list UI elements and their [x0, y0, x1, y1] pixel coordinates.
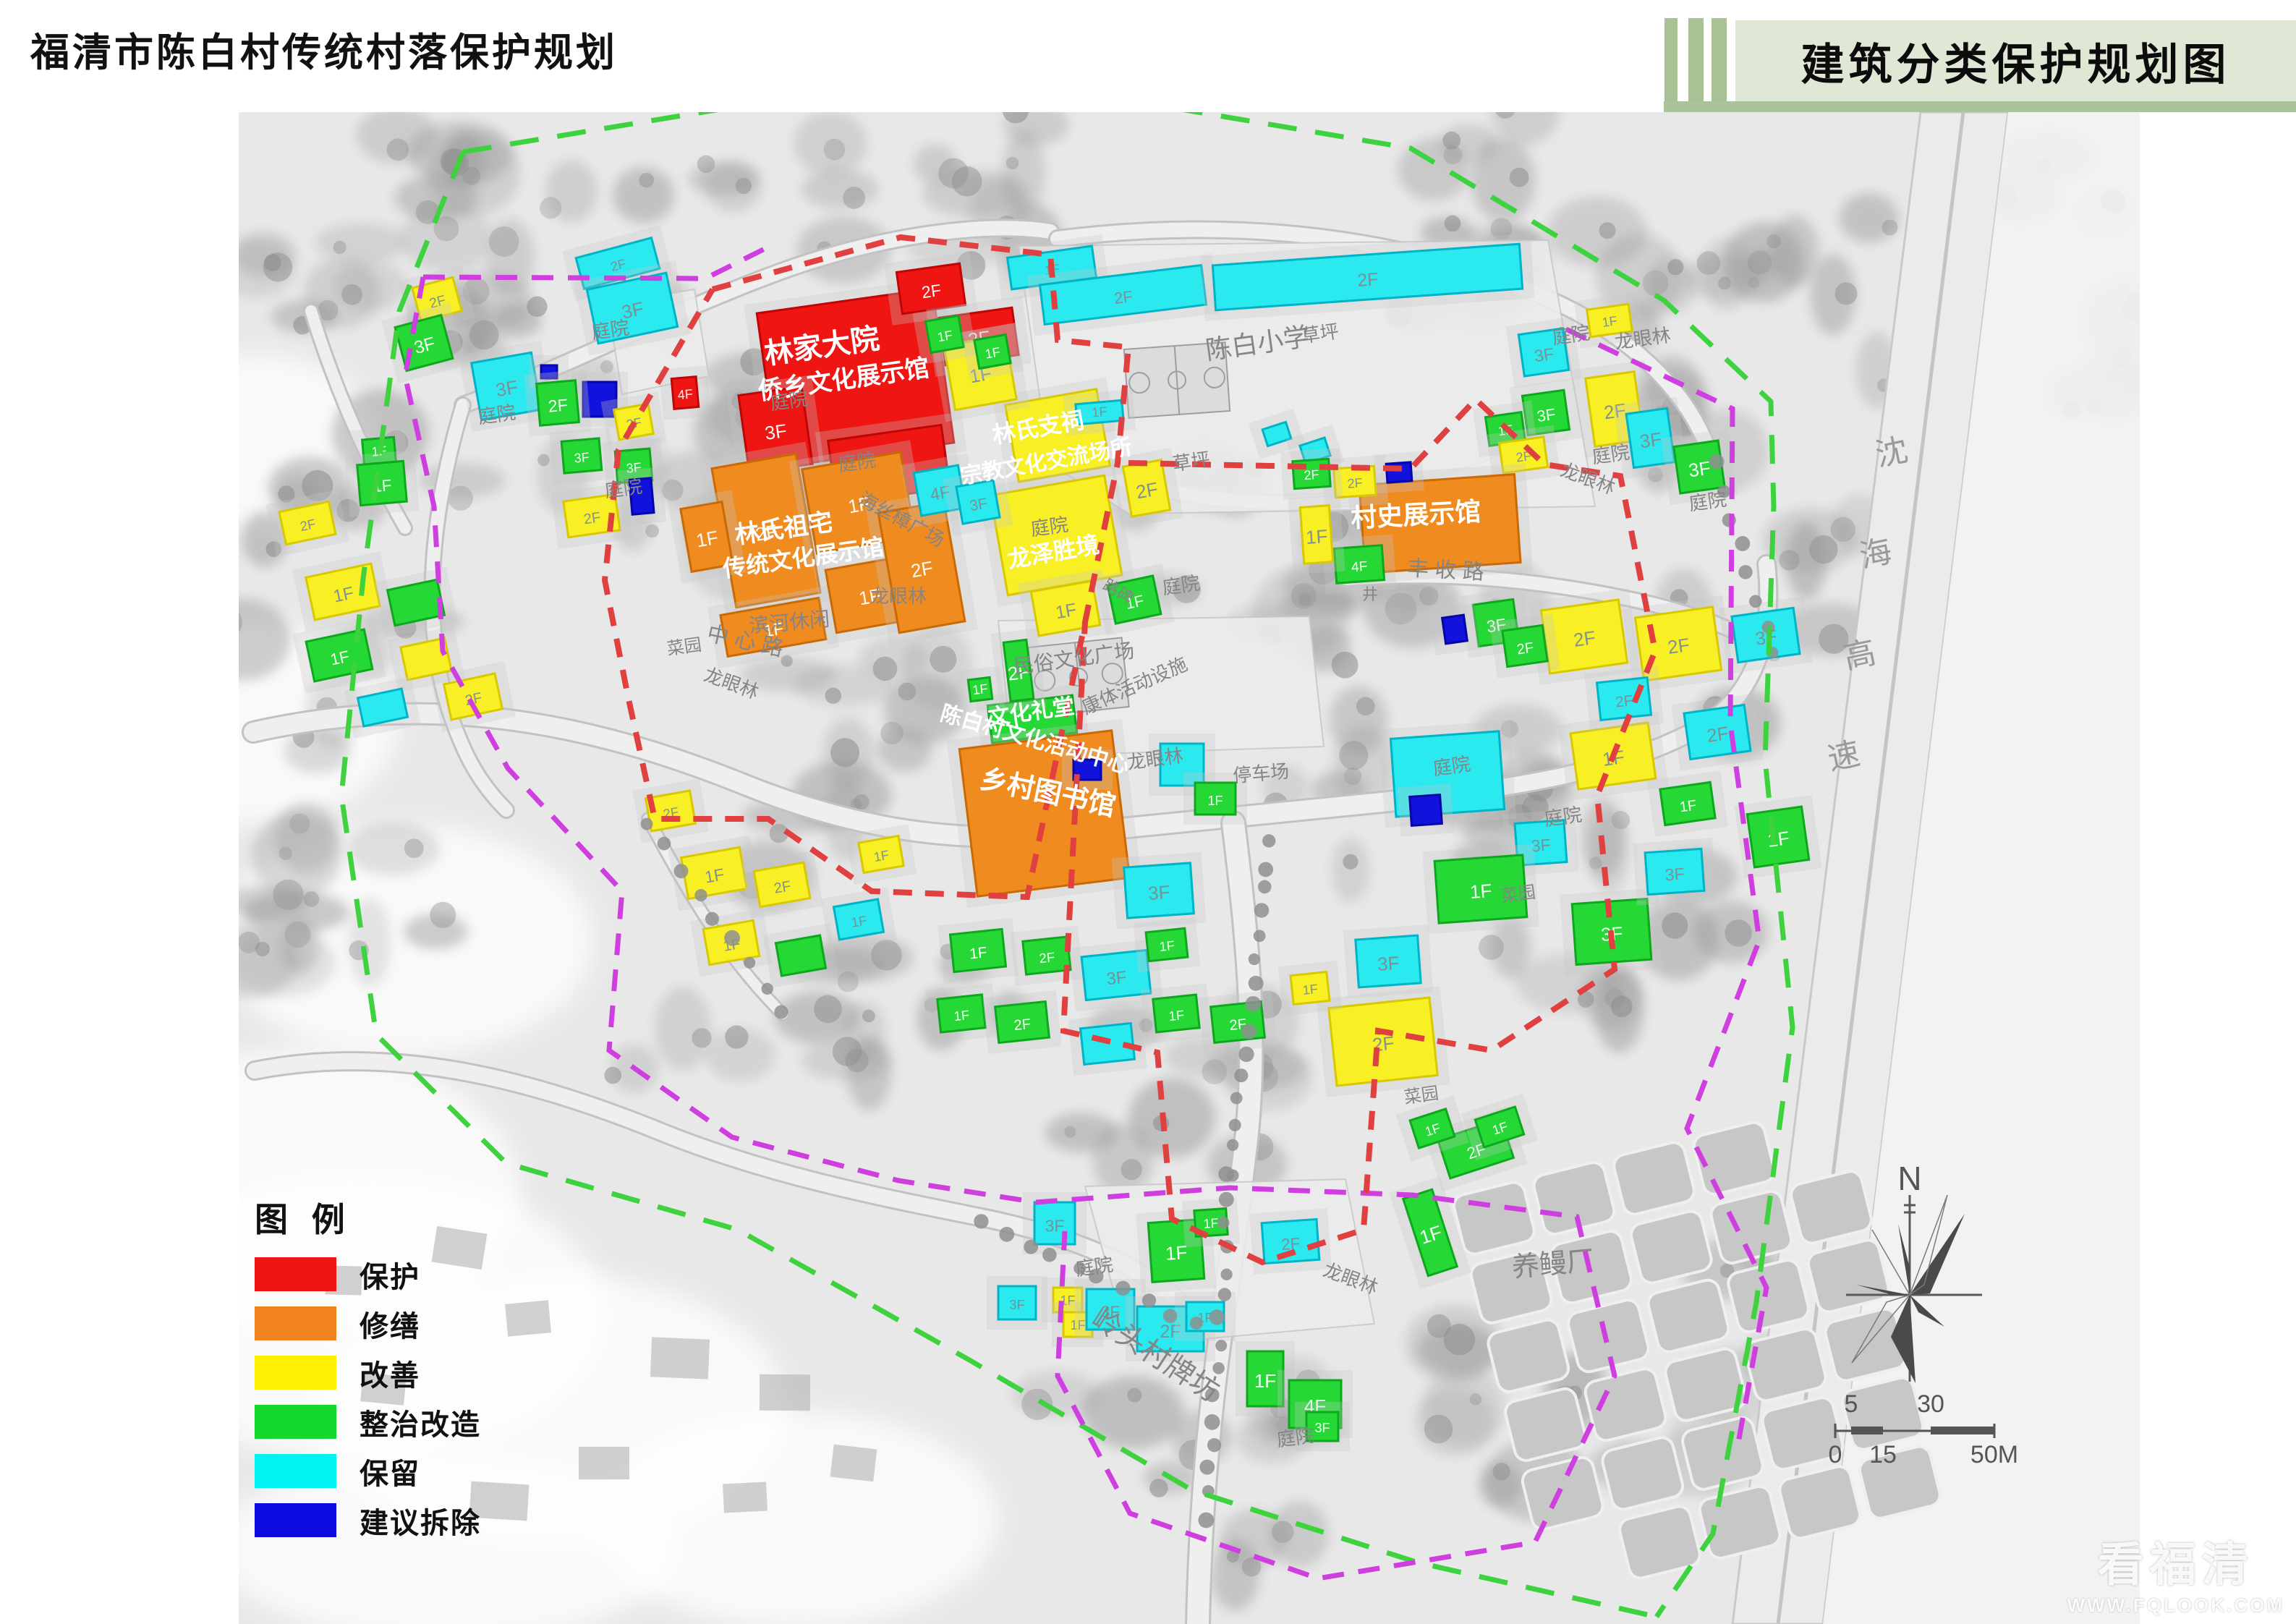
- floor-tag: 3F: [969, 495, 989, 514]
- street-tree: [1115, 1281, 1130, 1296]
- scale-label: 30: [1917, 1390, 1944, 1418]
- street-tree: [1220, 1269, 1232, 1280]
- floor-tag: 3F: [1045, 1217, 1064, 1236]
- floor-tag: 1F: [1165, 1241, 1188, 1264]
- building: [1410, 795, 1442, 826]
- tree: [333, 241, 346, 254]
- tree: [639, 173, 654, 188]
- floor-tag: 1F: [1678, 797, 1697, 815]
- tree: [263, 252, 292, 281]
- street-tree: [1212, 1362, 1225, 1374]
- floor-tag: 4F: [677, 387, 694, 403]
- legend-label: 改善: [360, 1352, 420, 1394]
- tree: [1343, 854, 1358, 870]
- tree: [1479, 935, 1504, 960]
- tree: [1444, 1324, 1475, 1355]
- floor-tag: 3F: [1536, 405, 1557, 425]
- tree: [1445, 216, 1461, 232]
- tree: [1779, 550, 1799, 570]
- street-tree: [1749, 595, 1762, 608]
- legend-item-renovate: 整治改造: [255, 1405, 660, 1439]
- floor-tag: 2F: [582, 509, 601, 527]
- tree-cluster: [243, 892, 349, 933]
- floor-tag: 2F: [1134, 478, 1160, 503]
- tree-cluster: [802, 169, 878, 208]
- tree-cluster: [334, 260, 407, 311]
- legend-swatch-renovate: [255, 1405, 336, 1439]
- floor-tag: 3F: [763, 420, 788, 444]
- street-tree: [974, 1214, 988, 1228]
- tree: [838, 972, 859, 992]
- floor-tag: 2F: [1615, 692, 1634, 710]
- floor-tag: 2F: [1666, 634, 1691, 658]
- tree-cluster: [1491, 72, 1560, 145]
- scale-label: 50M: [1970, 1441, 2018, 1468]
- floor-tag: 2F: [1039, 949, 1056, 966]
- building: [1386, 462, 1412, 482]
- tree: [537, 454, 550, 467]
- tree: [1748, 250, 1772, 275]
- tree: [1003, 97, 1029, 123]
- tree: [825, 687, 842, 704]
- street-tree: [1258, 880, 1272, 894]
- tree: [489, 226, 519, 257]
- floor-tag: 2F: [773, 878, 792, 897]
- tree: [1356, 697, 1375, 715]
- tree: [1332, 652, 1359, 679]
- tree: [211, 606, 242, 638]
- floor-tag: 2F: [299, 516, 317, 534]
- street-tree: [1230, 1092, 1243, 1105]
- tree: [930, 646, 956, 673]
- building: [1442, 615, 1468, 644]
- tree: [1298, 593, 1311, 606]
- floor-tag: 2F: [1013, 1016, 1032, 1034]
- floor-tag: 1F: [703, 864, 726, 886]
- photo-roof: [830, 1445, 877, 1482]
- legend-label: 保留: [360, 1450, 420, 1492]
- compass-north-label: N: [1897, 1160, 1921, 1197]
- tree: [814, 995, 842, 1024]
- tree: [692, 1028, 711, 1047]
- tree-cluster: [198, 599, 291, 681]
- floor-tag: 1F: [872, 848, 890, 864]
- tree: [600, 360, 613, 373]
- floor-tag: 1F: [1601, 313, 1618, 330]
- floor-tag: 2F: [548, 395, 569, 415]
- street-tree: [1207, 1438, 1221, 1452]
- street-tree: [1258, 862, 1273, 877]
- street-tree: [1735, 536, 1750, 551]
- floor-tag: 1F: [331, 583, 355, 606]
- street-tree: [1254, 930, 1266, 942]
- tree: [1419, 587, 1438, 605]
- photo-roof: [760, 1374, 810, 1411]
- floor-tag: 3F: [1664, 864, 1685, 885]
- street-tree: [1209, 1309, 1225, 1325]
- tree: [662, 480, 684, 501]
- tree: [1599, 222, 1616, 239]
- floor-tag: 1F: [1168, 1007, 1186, 1024]
- tree: [697, 156, 715, 174]
- street-tree: [1163, 1309, 1178, 1323]
- street-tree: [694, 889, 707, 901]
- floor-tag: 1F: [1203, 1215, 1219, 1230]
- tree-cluster: [1839, 193, 1898, 243]
- tree: [873, 657, 898, 681]
- tree: [604, 1067, 621, 1084]
- tree: [880, 722, 903, 745]
- street-tree: [1738, 565, 1752, 579]
- legend-swatch-protect: [255, 1257, 336, 1291]
- floor-tag: 2F: [1572, 626, 1596, 651]
- legend-swatch-retain: [255, 1454, 336, 1488]
- floor-tag: 1F: [694, 527, 720, 552]
- street-tree: [774, 1005, 788, 1019]
- street-tree: [1142, 1293, 1156, 1307]
- tree: [862, 1010, 875, 1023]
- street-tree: [1024, 1240, 1038, 1254]
- tree: [1470, 1393, 1481, 1405]
- floor-tag: 1F: [328, 647, 351, 669]
- tree: [1662, 912, 1688, 938]
- street-tree: [724, 930, 740, 946]
- street-tree: [1218, 1166, 1234, 1182]
- floor-tag: 3F: [1009, 1297, 1024, 1312]
- legend-label: 保护: [360, 1254, 420, 1296]
- tree: [1697, 251, 1721, 275]
- legend-title: 图 例: [255, 1194, 660, 1241]
- floor-tag: 1F: [1054, 600, 1078, 624]
- legend-item-repair: 修缮: [255, 1306, 660, 1340]
- floor-tag: 2F: [1347, 475, 1363, 490]
- floor-tag: 1F: [936, 328, 953, 344]
- floor-tag: 1F: [1469, 880, 1492, 903]
- floor-tag: 4F: [1351, 559, 1368, 576]
- tree: [1831, 517, 1855, 542]
- tree: [404, 838, 424, 858]
- floor-tag: 3F: [574, 450, 590, 466]
- floor-tag: 3F: [1105, 968, 1128, 990]
- tree: [1882, 220, 1898, 236]
- tree: [540, 197, 561, 218]
- street-tree: [1229, 1119, 1241, 1131]
- floor-tag: 1F: [984, 344, 1001, 361]
- tree: [1064, 1126, 1076, 1138]
- map-label: 龙眼林: [870, 585, 927, 607]
- street-tree: [1227, 1139, 1238, 1151]
- street-tree: [1199, 1460, 1215, 1475]
- street-tree: [1042, 1248, 1057, 1262]
- legend-label: 整治改造: [360, 1401, 481, 1443]
- floor-tag: 1F: [1305, 525, 1328, 548]
- scale-label: 5: [1845, 1390, 1858, 1418]
- tree: [1835, 282, 1858, 305]
- street-tree: [641, 818, 653, 830]
- street-tree: [1249, 953, 1260, 965]
- floor-tag: 1F: [953, 1007, 971, 1024]
- floor-tag: 3F: [1687, 457, 1712, 482]
- floor-tag: 2F: [1113, 287, 1134, 307]
- street-tree: [1198, 1513, 1214, 1529]
- tree: [725, 1025, 748, 1048]
- tree: [1149, 1479, 1168, 1497]
- floor-tag: 1F: [971, 681, 988, 697]
- floor-tag: 1F: [1092, 404, 1108, 420]
- floor-tag: 2F: [1356, 270, 1379, 291]
- building: [775, 935, 825, 976]
- scale-label: 15: [1869, 1441, 1897, 1468]
- floor-tag: 3F: [1638, 428, 1663, 453]
- street-tree: [1190, 1317, 1203, 1330]
- legend-label: 建议拆除: [360, 1500, 481, 1542]
- legend: 图 例 保护 修缮 改善 整治改造 保留 建议拆除: [255, 1194, 660, 1552]
- tree: [1510, 168, 1529, 187]
- tree: [1006, 157, 1019, 169]
- floor-tag: 1F: [1207, 794, 1223, 808]
- tree: [430, 902, 456, 928]
- legend-item-improve: 改善: [255, 1356, 660, 1390]
- street-tree: [1254, 903, 1269, 917]
- floor-tag: 1F: [1302, 982, 1319, 998]
- legend-swatch-repair: [255, 1306, 336, 1340]
- tree: [387, 138, 409, 161]
- street-tree: [1245, 996, 1261, 1012]
- floor-tag: 3F: [1147, 881, 1170, 904]
- tree: [279, 847, 292, 860]
- street-tree: [1241, 1024, 1257, 1039]
- street-tree: [1215, 1340, 1227, 1351]
- street-tree: [1262, 834, 1275, 847]
- floor-tag: 2F: [1304, 467, 1319, 482]
- floor-tag: 1F: [1159, 938, 1175, 954]
- street-tree: [999, 1227, 1014, 1242]
- photo-roof: [723, 1482, 768, 1513]
- tree: [1494, 98, 1515, 119]
- street-tree: [1204, 1414, 1220, 1430]
- street-tree: [1238, 1047, 1254, 1062]
- tree-cluster: [1332, 838, 1369, 903]
- street-tree: [1217, 1217, 1230, 1229]
- tree: [833, 1037, 862, 1066]
- floor-tag: 2F: [1515, 639, 1534, 658]
- plan-sheet: 福清市陈白村传统村落保护规划 建筑分类保护规划图 2F3F2F3F3F2F2F3…: [0, 0, 2296, 1624]
- floor-tag: 3F: [1314, 1421, 1330, 1435]
- tree: [1442, 132, 1460, 150]
- legend-swatch-improve: [255, 1356, 336, 1390]
- tree: [1725, 919, 1752, 947]
- floor-tag: 3F: [494, 376, 519, 401]
- floor-tag: 2F: [1706, 723, 1730, 747]
- legend-label: 修缮: [360, 1303, 420, 1345]
- street-tree: [705, 912, 719, 926]
- floor-tag: 1F: [850, 912, 868, 930]
- tree-cluster: [1002, 131, 1045, 214]
- tree: [854, 794, 869, 810]
- tree-cluster: [315, 223, 408, 263]
- street-tree: [1234, 1068, 1248, 1082]
- scale-label: 0: [1829, 1441, 1842, 1468]
- street-tree: [762, 983, 773, 995]
- tree: [1667, 259, 1683, 275]
- tree-cluster: [1330, 686, 1388, 754]
- tree: [341, 284, 362, 305]
- legend-swatch-demolish: [255, 1503, 336, 1537]
- tree: [304, 891, 320, 907]
- floor-tag: 1F: [969, 944, 988, 962]
- legend-item-protect: 保护: [255, 1257, 660, 1291]
- floor-tag: 1F: [1766, 827, 1790, 851]
- street-tree: [1249, 976, 1264, 991]
- tree: [938, 158, 969, 189]
- floor-tag: 2F: [909, 557, 935, 582]
- street-tree: [674, 864, 689, 878]
- street-tree: [1218, 1288, 1231, 1301]
- tree-cluster: [1422, 1366, 1506, 1447]
- street-tree: [1709, 454, 1725, 469]
- street-tree: [1219, 1192, 1234, 1207]
- floor-tag: 3F: [1533, 344, 1555, 366]
- tree: [1611, 995, 1633, 1017]
- street-tree: [658, 837, 671, 851]
- tree: [843, 187, 865, 209]
- floor-tag: 3F: [1377, 952, 1400, 975]
- tree-cluster: [346, 822, 439, 875]
- tree: [824, 139, 846, 161]
- tree: [255, 942, 270, 956]
- tree: [1127, 1388, 1141, 1403]
- map-label: 井: [1362, 585, 1378, 603]
- tree: [1121, 1159, 1142, 1180]
- legend-item-demolish: 建议拆除: [255, 1503, 660, 1537]
- tree: [645, 524, 659, 538]
- map-label: 丰 收 路: [1406, 556, 1484, 584]
- floor-tag: 2F: [920, 281, 942, 302]
- tree: [448, 485, 472, 510]
- legend-item-retain: 保留: [255, 1454, 660, 1488]
- floor-tag: 1F: [1254, 1370, 1276, 1392]
- street-tree: [744, 957, 755, 969]
- tree: [1612, 811, 1630, 830]
